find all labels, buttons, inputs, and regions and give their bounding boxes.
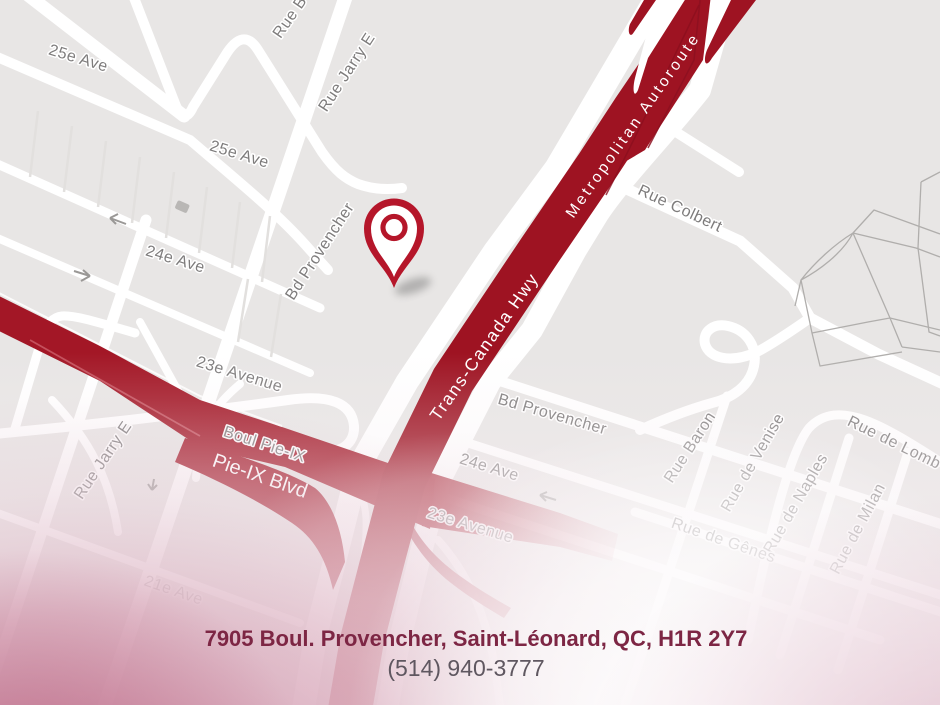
svg-text:(514) 940-3777: (514) 940-3777 [387,655,544,681]
svg-text:7905 Boul. Provencher, Saint-L: 7905 Boul. Provencher, Saint-Léonard, QC… [205,626,748,651]
